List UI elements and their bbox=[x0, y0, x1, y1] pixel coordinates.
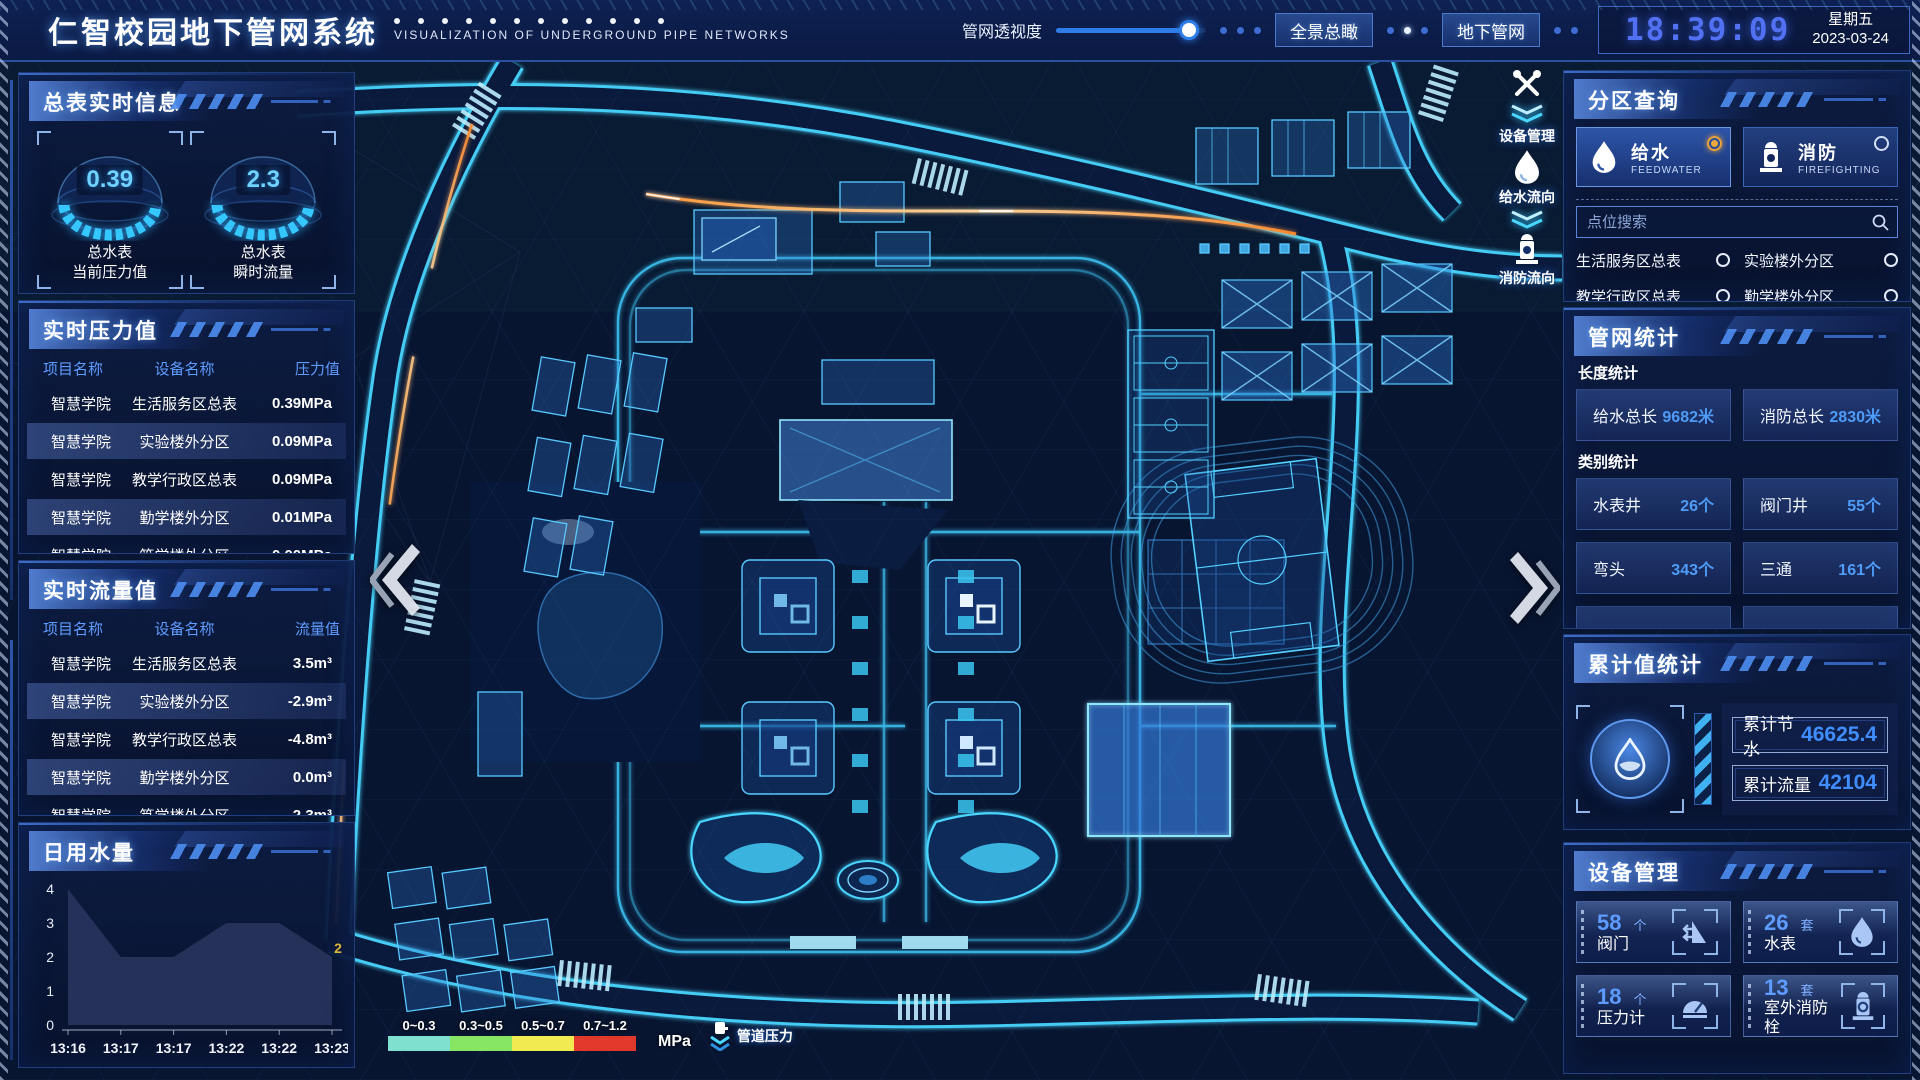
hydrant-icon bbox=[1754, 140, 1788, 174]
zone-item[interactable]: 教学行政区总表 bbox=[1576, 278, 1730, 302]
table-row: 智慧学院笃学楼外分区0.00MPa bbox=[27, 537, 346, 554]
svg-text:13:22: 13:22 bbox=[208, 1040, 244, 1056]
zone-item[interactable]: 生活服务区总表 bbox=[1576, 242, 1730, 278]
table-header: 项目名称 设备名称 流量值 bbox=[19, 613, 354, 643]
panel-title: 分区查询 bbox=[1588, 85, 1680, 115]
legend-range: 0.5~0.7 bbox=[521, 1018, 565, 1033]
legend-seg: 0.5~0.7 bbox=[512, 1018, 574, 1051]
stat-box bbox=[1576, 606, 1731, 629]
search-icon bbox=[1872, 214, 1889, 231]
svg-text:2: 2 bbox=[46, 949, 54, 965]
slashes-decor bbox=[170, 582, 270, 597]
device-manage-float-button[interactable]: 设备管理 bbox=[1499, 66, 1555, 146]
divider bbox=[1576, 199, 1898, 200]
dots-decor bbox=[1387, 27, 1428, 34]
legend-seg: 0~0.3 bbox=[388, 1018, 450, 1051]
legend-swatch bbox=[574, 1036, 636, 1051]
hydrant-device-card: 13套 室外消防栓 bbox=[1743, 975, 1898, 1037]
table-row: 智慧学院勤学楼外分区0.01MPa bbox=[27, 499, 346, 535]
point-search-input[interactable] bbox=[1577, 207, 1897, 237]
table-row: 智慧学院教学行政区总表-4.8m³ bbox=[27, 721, 346, 757]
slashes-decor bbox=[170, 322, 270, 337]
chevron-down-icon bbox=[1510, 210, 1544, 230]
pressure-meter-icon bbox=[709, 1021, 731, 1051]
svg-text:1: 1 bbox=[46, 983, 54, 999]
radio-icon bbox=[1716, 289, 1730, 302]
water-drop-icon bbox=[1839, 909, 1885, 955]
dots-decor bbox=[1220, 27, 1261, 34]
pressure-gauge-icon bbox=[1672, 983, 1718, 1029]
dots-decor bbox=[1554, 27, 1578, 34]
weekday: 星期五 bbox=[1828, 11, 1873, 30]
underground-pipes-button[interactable]: 地下管网 bbox=[1442, 13, 1540, 47]
legend-range: 0.3~0.5 bbox=[459, 1018, 503, 1033]
slashes-decor bbox=[1720, 329, 1820, 344]
point-search bbox=[1576, 206, 1898, 238]
panel-header: 累计值统计 bbox=[1574, 643, 1900, 683]
pressure-table: 智慧学院生活服务区总表0.39MPa 智慧学院实验楼外分区0.09MPa 智慧学… bbox=[19, 385, 354, 554]
toggle-label: 消防 bbox=[1798, 139, 1881, 165]
pressure-gauge-device-card: 18个 压力计 bbox=[1576, 975, 1731, 1037]
svg-text:0: 0 bbox=[46, 1017, 54, 1033]
radio-selected-icon[interactable] bbox=[1707, 136, 1722, 151]
pipe-pressure-legend: 0~0.3 0.3~0.5 0.5~0.7 0.7~1.2 MPa 管道压力 bbox=[388, 1018, 793, 1051]
hatch-divider bbox=[1694, 713, 1712, 805]
slider-thumb[interactable] bbox=[1179, 20, 1199, 40]
water-drop-icon bbox=[1512, 149, 1542, 185]
gauge-label: 当前压力值 bbox=[37, 263, 183, 283]
panel-title: 总表实时信息 bbox=[43, 87, 181, 117]
panel-title: 日用水量 bbox=[43, 837, 135, 867]
device-manage-panel: 设备管理 58个 阀门 26套 水表 bbox=[1563, 842, 1911, 1074]
panel-header: 分区查询 bbox=[1574, 79, 1900, 119]
panel-title: 实时压力值 bbox=[43, 315, 158, 345]
svg-text:2: 2 bbox=[334, 940, 342, 956]
radio-icon[interactable] bbox=[1874, 136, 1889, 151]
svg-text:13:16: 13:16 bbox=[50, 1040, 86, 1056]
table-row: 智慧学院实验楼外分区0.09MPa bbox=[27, 423, 346, 459]
radio-icon bbox=[1884, 289, 1898, 302]
panel-header: 实时流量值 bbox=[29, 569, 344, 609]
stat-box: 累计节水 46625.4 bbox=[1732, 717, 1888, 753]
brand: 仁智校园地下管网系统 VISUALIZATION OF UNDERGROUND … bbox=[0, 8, 790, 52]
radio-icon bbox=[1884, 253, 1898, 267]
toggle-sublabel: FEEDWATER bbox=[1631, 165, 1702, 176]
slashes-decor bbox=[1720, 864, 1820, 879]
slashes-decor bbox=[1720, 656, 1820, 671]
cumulative-stats-panel: 累计值统计 累计节水 46625.4 累计流量 bbox=[1563, 634, 1911, 830]
title-dots bbox=[394, 18, 790, 24]
panel-title: 管网统计 bbox=[1588, 322, 1680, 352]
svg-text:13:23: 13:23 bbox=[314, 1040, 348, 1056]
flow-table: 智慧学院生活服务区总表3.5m³ 智慧学院实验楼外分区-2.9m³ 智慧学院教学… bbox=[19, 645, 354, 816]
chevron-down-icon bbox=[1510, 104, 1544, 124]
map-float-tools: 设备管理 给水流向 消防流向 bbox=[1490, 66, 1564, 288]
panel-header: 日用水量 bbox=[29, 831, 344, 871]
transparency-label: 管网透视度 bbox=[962, 18, 1042, 42]
zone-item[interactable]: 勤学楼外分区 bbox=[1744, 278, 1898, 302]
stat-box: 累计流量 42104 bbox=[1732, 765, 1888, 801]
realtime-flow-panel: 实时流量值 项目名称 设备名称 流量值 智慧学院生活服务区总表3.5m³ 智慧学… bbox=[18, 560, 355, 816]
water-meter-device-card: 26套 水表 bbox=[1743, 901, 1898, 963]
dashboard-screen: 设备管理 给水流向 消防流向 0~0.3 bbox=[0, 0, 1920, 1080]
water-drop-icon bbox=[1587, 140, 1621, 174]
daily-usage-chart: 0123413:1613:1713:1713:2213:2213:232 bbox=[26, 875, 348, 1065]
legend-swatch bbox=[450, 1036, 512, 1051]
gauge-label: 总水表 bbox=[190, 243, 336, 263]
stat-box: 弯头 343个 bbox=[1576, 542, 1731, 594]
panel-header: 管网统计 bbox=[1574, 316, 1900, 356]
water-saving-icon-frame bbox=[1576, 705, 1684, 813]
float-label: 消防流向 bbox=[1499, 268, 1555, 288]
date: 2023-03-24 bbox=[1812, 30, 1889, 49]
gauge-label: 总水表 bbox=[37, 243, 183, 263]
table-row: 智慧学院生活服务区总表0.39MPa bbox=[27, 385, 346, 421]
carousel-right-arrow[interactable] bbox=[1502, 548, 1560, 628]
left-rail bbox=[10, 80, 13, 600]
toggle-label: 给水 bbox=[1631, 139, 1702, 165]
stat-box: 阀门井 55个 bbox=[1743, 478, 1898, 530]
zone-item[interactable]: 实验楼外分区 bbox=[1744, 242, 1898, 278]
stat-box bbox=[1743, 606, 1898, 629]
svg-text:4: 4 bbox=[46, 881, 54, 897]
valve-device-card: 58个 阀门 bbox=[1576, 901, 1731, 963]
firefighting-toggle-button[interactable]: 消防 FIREFIGHTING bbox=[1743, 127, 1898, 187]
carousel-left-arrow[interactable] bbox=[370, 540, 428, 620]
panel-title: 累计值统计 bbox=[1588, 649, 1703, 679]
network-stats-panel: 管网统计 长度统计 给水总长 9682米 消防总长 2830米 类别统计 水表井… bbox=[1563, 307, 1911, 629]
table-row: 智慧学院实验楼外分区-2.9m³ bbox=[27, 683, 346, 719]
meter-info-panel: 总表实时信息 0.39 总水表 当前压力值 bbox=[18, 72, 355, 294]
slashes-decor bbox=[170, 94, 270, 109]
slashes-decor bbox=[170, 844, 270, 859]
panel-header: 设备管理 bbox=[1574, 851, 1900, 891]
hydrant-icon bbox=[1512, 232, 1542, 266]
legend-range: 0.7~1.2 bbox=[583, 1018, 627, 1033]
legend-seg: 0.7~1.2 bbox=[574, 1018, 636, 1051]
cumulative-values: 累计节水 46625.4 累计流量 42104 bbox=[1722, 703, 1898, 815]
valve-icon bbox=[1672, 909, 1718, 955]
svg-text:13:22: 13:22 bbox=[261, 1040, 297, 1056]
legend-label: 管道压力 bbox=[737, 1026, 793, 1046]
panel-header: 实时压力值 bbox=[29, 309, 344, 349]
water-drop-icon bbox=[1590, 719, 1670, 799]
toggle-sublabel: FIREFIGHTING bbox=[1798, 165, 1881, 176]
stat-box: 水表井 26个 bbox=[1576, 478, 1731, 530]
hydrant-icon bbox=[1841, 983, 1885, 1029]
panel-header: 总表实时信息 bbox=[29, 81, 344, 121]
legend-range: 0~0.3 bbox=[403, 1018, 436, 1033]
category-stats-label: 类别统计 bbox=[1578, 451, 1896, 472]
table-row: 智慧学院笃学楼外分区-2.3m³ bbox=[27, 797, 346, 816]
clock-time: 18:39:09 bbox=[1625, 12, 1790, 48]
flow-gauge: 2.3 总水表 瞬时流量 bbox=[190, 131, 336, 289]
panel-title: 设备管理 bbox=[1588, 857, 1680, 887]
tools-icon bbox=[1509, 66, 1545, 102]
app-subtitle: VISUALIZATION OF UNDERGROUND PIPE NETWOR… bbox=[394, 28, 790, 42]
panel-title: 实时流量值 bbox=[43, 575, 158, 605]
clock-box: 18:39:09 星期五 2023-03-24 bbox=[1598, 6, 1910, 54]
feedwater-flow-float-button[interactable]: 给水流向 bbox=[1499, 149, 1555, 207]
zone-query-panel: 分区查询 给水 FEEDWATER bbox=[1563, 70, 1911, 302]
daily-usage-panel: 日用水量 0123413:1613:1713:1713:2213:2213:23… bbox=[18, 822, 355, 1068]
stat-box: 三通 161个 bbox=[1743, 542, 1898, 594]
table-row: 智慧学院勤学楼外分区0.0m³ bbox=[27, 759, 346, 795]
overview-button[interactable]: 全景总瞰 bbox=[1275, 13, 1373, 47]
app-title: 仁智校园地下管网系统 bbox=[48, 8, 378, 52]
stat-box: 消防总长 2830米 bbox=[1743, 389, 1898, 441]
legend-unit: MPa bbox=[658, 1033, 691, 1051]
table-row: 智慧学院教学行政区总表0.09MPa bbox=[27, 461, 346, 497]
gauge-label: 瞬时流量 bbox=[190, 263, 336, 283]
svg-text:13:17: 13:17 bbox=[155, 1040, 191, 1056]
slashes-decor bbox=[1720, 92, 1820, 107]
svg-text:13:17: 13:17 bbox=[102, 1040, 138, 1056]
left-rail bbox=[10, 640, 13, 1060]
stat-box: 给水总长 9682米 bbox=[1576, 389, 1731, 441]
zone-list: 生活服务区总表 实验楼外分区 教学行政区总表 勤学楼外分区 砺学楼外分区 宿舍区… bbox=[1564, 238, 1910, 302]
length-stats-label: 长度统计 bbox=[1578, 362, 1896, 383]
svg-text:3: 3 bbox=[46, 915, 54, 931]
fire-flow-float-button[interactable]: 消防流向 bbox=[1499, 210, 1555, 288]
table-row: 智慧学院生活服务区总表3.5m³ bbox=[27, 645, 346, 681]
legend-seg: 0.3~0.5 bbox=[450, 1018, 512, 1051]
basketball-courts bbox=[1128, 330, 1214, 518]
gauge-value: 2.3 bbox=[237, 165, 290, 195]
pipe-transparency-slider[interactable] bbox=[1056, 21, 1206, 39]
top-header: 仁智校园地下管网系统 VISUALIZATION OF UNDERGROUND … bbox=[0, 0, 1920, 62]
realtime-pressure-panel: 实时压力值 项目名称 设备名称 压力值 智慧学院生活服务区总表0.39MPa 智… bbox=[18, 300, 355, 554]
float-label: 给水流向 bbox=[1499, 187, 1555, 207]
float-label: 设备管理 bbox=[1499, 126, 1555, 146]
feedwater-toggle-button[interactable]: 给水 FEEDWATER bbox=[1576, 127, 1731, 187]
legend-swatch bbox=[388, 1036, 450, 1051]
legend-swatch bbox=[512, 1036, 574, 1051]
radio-icon bbox=[1716, 253, 1730, 267]
pressure-gauge: 0.39 总水表 当前压力值 bbox=[37, 131, 183, 289]
table-header: 项目名称 设备名称 压力值 bbox=[19, 353, 354, 383]
gauge-value: 0.39 bbox=[76, 165, 143, 195]
